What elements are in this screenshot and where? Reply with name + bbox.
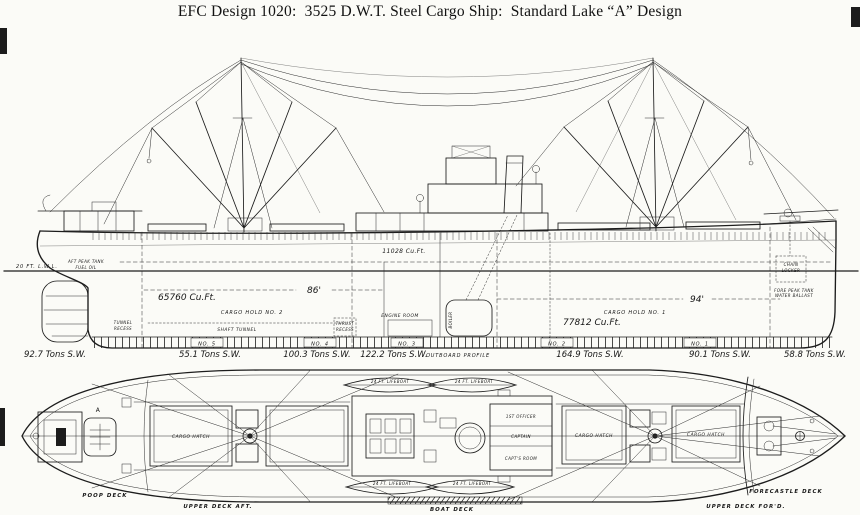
plan-view: A <box>22 370 845 513</box>
fore-mast <box>653 58 656 231</box>
tank-label-3: NO. 3 <box>398 342 416 348</box>
capstan <box>796 432 805 441</box>
boat-deck-house <box>428 184 542 213</box>
fore-cargo-hatch-2-label: CARGO HATCH <box>687 432 725 438</box>
lifeboat-4-label: 24 FT. LIFEBOAT <box>453 481 491 486</box>
stern-davit <box>43 195 50 211</box>
tonnage-5: 164.9 Tons S.W. <box>556 350 623 360</box>
hold1-name: CARGO HOLD NO. 1 <box>604 310 666 316</box>
hold2-length: 86' <box>307 286 321 296</box>
aft-mast <box>241 58 244 232</box>
companion-stair-1 <box>424 410 436 422</box>
fore-topping-lifts <box>564 62 748 127</box>
capts-room-label: CAPT'S ROOM <box>505 456 537 461</box>
tank-label-1: NO. 1 <box>691 342 709 348</box>
forecastle-deck-label: FORECASTLE DECK <box>749 489 823 495</box>
aft-peak-label-1: AFT PEAK TANK <box>67 259 104 264</box>
upper-deck-aft-label: UPPER DECK AFT. <box>183 504 252 510</box>
ventilator-cowl-aft <box>416 194 423 201</box>
profile-caption: OUTBOARD PROFILE <box>426 353 490 359</box>
hold-dimensions <box>144 290 780 299</box>
hold1-volume: 77812 Cu.Ft. <box>563 318 621 328</box>
stays-rigging <box>50 58 834 220</box>
lifeboat-1-label: 24 FT. LIFEBOAT <box>371 379 409 384</box>
deck-fitting-1 <box>122 398 131 407</box>
tunnel-recess-label-2: RECESS <box>114 326 132 331</box>
cargo-hook-aft <box>147 159 151 163</box>
deck-beam-ticks <box>92 232 830 240</box>
shaft-tunnel-label: SHAFT TUNNEL <box>217 327 256 333</box>
hold1-length: 94' <box>690 295 704 305</box>
double-bottom: NO. 5 NO. 4 NO. 3 NO. 2 NO. 1 <box>92 337 832 348</box>
tonnage-1: 92.7 Tons S.W. <box>24 350 86 360</box>
blueprint-page: EFC Design 1020: 3525 D.W.T. Steel Cargo… <box>0 0 860 515</box>
tunnel-recess-label-1: TUNNEL <box>114 320 133 325</box>
poop-skylight <box>84 418 116 456</box>
thrust-recess-label-2: RECESS <box>336 327 354 332</box>
fore-peak-label-2: WATER BALLAST <box>775 293 813 298</box>
captain-label: CAPTAIN <box>511 434 531 439</box>
engine-room-label: ENGINE ROOM <box>381 313 418 319</box>
ventilator-cowl-fore <box>532 165 539 172</box>
fore-boom-guys <box>516 127 796 220</box>
aft-cargo-hatch-label: CARGO HATCH <box>172 434 210 440</box>
profile-view: 20 FT. L.W.L. <box>4 58 858 360</box>
tonnage-3: 100.3 Tons S.W. <box>283 350 350 360</box>
boat-deck-edge-bar <box>388 497 522 504</box>
poop-structure <box>38 195 142 231</box>
deck-fitting-2 <box>122 464 131 473</box>
tonnage-6: 90.1 Tons S.W. <box>689 350 751 360</box>
chain-locker-label-2: LOCKER <box>782 268 800 273</box>
lifeboat-2-label: 24 FT. LIFEBOAT <box>455 379 493 384</box>
hold2-name: CARGO HOLD NO. 2 <box>221 310 283 316</box>
boat-deck-label: BOAT DECK <box>430 507 474 513</box>
hull-outline <box>37 221 836 348</box>
bitt-1 <box>810 419 814 423</box>
cargo-hook-fore <box>749 161 753 165</box>
aft-peak-label-2: FUEL OIL <box>75 265 96 270</box>
hold2-volume: 65760 Cu.Ft. <box>158 293 216 303</box>
thrust-recess-label-1: THRUST <box>336 321 355 326</box>
boiler-label: BOILER <box>448 311 453 328</box>
chain-locker-label-1: CHAIN <box>784 262 799 267</box>
tonnage-2: 55.1 Tons S.W. <box>179 350 241 360</box>
ship-drawing: 20 FT. L.W.L. <box>0 0 860 515</box>
wheelhouse <box>446 158 496 184</box>
poop-deck-label: POOP DECK <box>82 493 127 499</box>
tank-label-4: NO. 4 <box>311 342 329 348</box>
fore-cargo-hatch-1-label: CARGO HATCH <box>575 433 613 439</box>
first-officer-label: 1ST OFFICER <box>506 414 536 419</box>
upper-deck-ford-label: UPPER DECK FOR'D. <box>706 504 785 510</box>
tank-label-5: NO. 5 <box>198 342 216 348</box>
companion-stair-2 <box>424 450 436 462</box>
deep-tank-volume: 11028 Cu.Ft. <box>382 248 425 255</box>
tank-label-2: NO. 2 <box>548 342 566 348</box>
frame-letter-label: A <box>96 407 101 414</box>
rudder <box>42 281 88 342</box>
funnel-plan <box>455 423 485 453</box>
steering-gear <box>33 412 82 462</box>
midship-superstructure <box>356 146 548 231</box>
hull-seam-line <box>40 240 836 246</box>
lifeboat-3-label: 24 FT. LIFEBOAT <box>373 481 411 486</box>
aft-mast-group <box>104 58 384 232</box>
tonnage-7: 58.8 Tons S.W. <box>784 350 846 360</box>
galley-fitting <box>440 418 456 428</box>
funnel <box>504 156 523 213</box>
tonnage-4: 122.2 Tons S.W. <box>360 350 427 360</box>
bitt-2 <box>810 449 814 453</box>
